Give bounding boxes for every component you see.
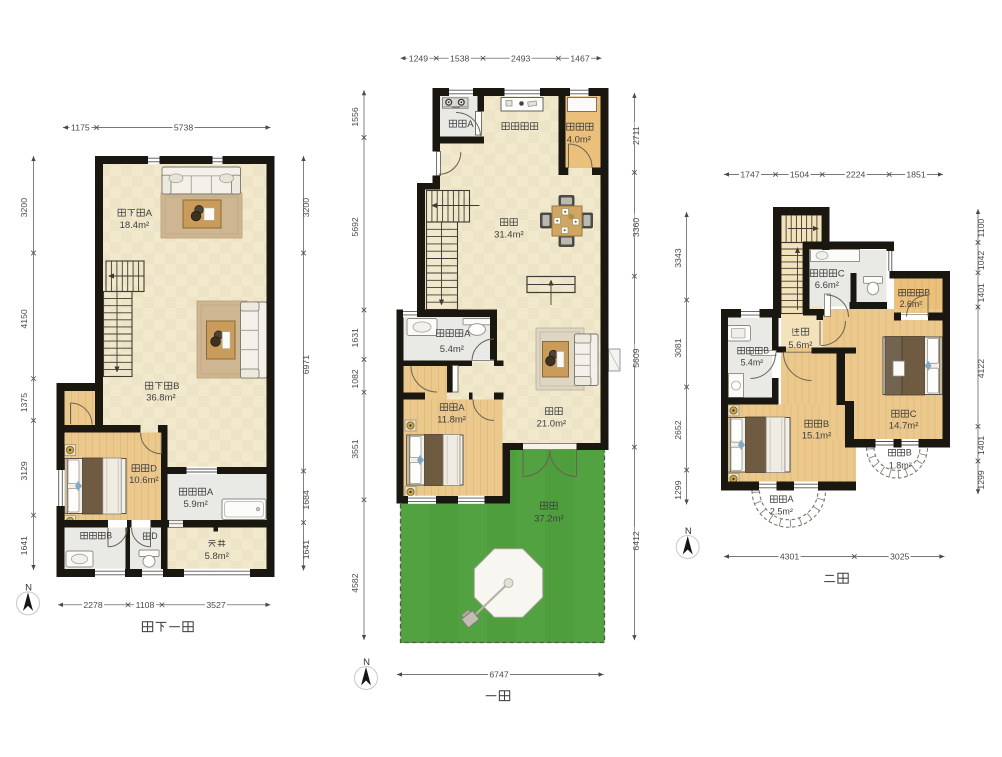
svg-text:5.8m²: 5.8m² xyxy=(205,551,229,562)
svg-text:C: C xyxy=(838,268,845,279)
svg-text:6971: 6971 xyxy=(301,355,311,374)
svg-text:1249: 1249 xyxy=(409,53,428,63)
svg-text:1641: 1641 xyxy=(19,536,29,555)
svg-text:1538: 1538 xyxy=(450,53,469,63)
svg-text:5.9m²: 5.9m² xyxy=(184,499,208,510)
svg-text:36.8m²: 36.8m² xyxy=(146,392,176,403)
svg-text:1375: 1375 xyxy=(19,393,29,412)
svg-text:3200: 3200 xyxy=(301,198,311,217)
svg-text:2.5m²: 2.5m² xyxy=(770,507,793,517)
svg-text:B: B xyxy=(924,288,930,298)
svg-text:5738: 5738 xyxy=(174,123,193,133)
svg-text:1641: 1641 xyxy=(301,540,311,559)
svg-text:B: B xyxy=(173,381,179,392)
svg-text:D: D xyxy=(150,463,157,474)
svg-text:B: B xyxy=(823,419,829,430)
svg-text:1042: 1042 xyxy=(976,251,986,270)
svg-text:5.6m²: 5.6m² xyxy=(788,340,812,351)
svg-text:2278: 2278 xyxy=(83,600,102,610)
svg-text:A: A xyxy=(458,402,465,413)
svg-text:1108: 1108 xyxy=(136,600,155,610)
svg-text:1504: 1504 xyxy=(790,170,809,180)
svg-text:3025: 3025 xyxy=(890,552,909,562)
svg-text:3360: 3360 xyxy=(631,218,641,237)
svg-text:2652: 2652 xyxy=(673,420,683,439)
svg-text:B: B xyxy=(106,531,112,541)
svg-text:31.4m²: 31.4m² xyxy=(494,229,524,240)
svg-text:3081: 3081 xyxy=(673,338,683,357)
svg-text:1401: 1401 xyxy=(976,283,986,302)
svg-text:1299: 1299 xyxy=(673,480,683,499)
svg-text:4122: 4122 xyxy=(976,359,986,378)
svg-text:1082: 1082 xyxy=(350,369,360,388)
svg-text:2493: 2493 xyxy=(511,53,530,63)
svg-text:4150: 4150 xyxy=(19,309,29,328)
svg-text:1401: 1401 xyxy=(976,436,986,455)
svg-text:2.6m²: 2.6m² xyxy=(900,299,923,309)
svg-text:C: C xyxy=(910,409,917,420)
svg-text:3343: 3343 xyxy=(673,248,683,267)
svg-text:11.8m²: 11.8m² xyxy=(437,414,466,425)
svg-text:1556: 1556 xyxy=(350,107,360,126)
svg-text:4.0m²: 4.0m² xyxy=(567,134,591,145)
svg-text:10.6m²: 10.6m² xyxy=(129,475,159,486)
svg-text:14.7m²: 14.7m² xyxy=(889,420,919,431)
svg-text:21.0m²: 21.0m² xyxy=(537,418,567,429)
svg-text:1631: 1631 xyxy=(350,328,360,347)
svg-text:18.4m²: 18.4m² xyxy=(120,220,150,231)
svg-text:5.4m²: 5.4m² xyxy=(440,344,464,355)
svg-text:D: D xyxy=(151,531,157,541)
svg-text:5.4m²: 5.4m² xyxy=(741,358,764,368)
svg-text:3200: 3200 xyxy=(19,198,29,217)
svg-text:1747: 1747 xyxy=(740,170,759,180)
svg-text:A: A xyxy=(207,487,214,498)
svg-text:5609: 5609 xyxy=(631,348,641,367)
svg-text:2711: 2711 xyxy=(631,126,641,145)
svg-text:15.1m²: 15.1m² xyxy=(802,430,832,441)
svg-text:37.2m²: 37.2m² xyxy=(534,513,564,524)
svg-text:4301: 4301 xyxy=(780,552,799,562)
svg-text:4582: 4582 xyxy=(350,573,360,592)
svg-text:B: B xyxy=(763,346,769,356)
svg-text:1.8m²: 1.8m² xyxy=(889,461,912,471)
svg-text:2224: 2224 xyxy=(846,170,865,180)
svg-text:1175: 1175 xyxy=(71,123,90,133)
svg-text:1467: 1467 xyxy=(570,53,589,63)
svg-text:A: A xyxy=(464,328,471,339)
svg-text:B: B xyxy=(906,448,912,458)
svg-text:3551: 3551 xyxy=(350,439,360,458)
svg-text:A: A xyxy=(467,119,474,130)
svg-text:A: A xyxy=(788,494,794,504)
svg-text:1299: 1299 xyxy=(976,470,986,489)
svg-text:3527: 3527 xyxy=(206,600,225,610)
svg-text:6.6m²: 6.6m² xyxy=(815,280,839,291)
svg-text:3129: 3129 xyxy=(19,461,29,480)
svg-text:1851: 1851 xyxy=(906,170,925,180)
svg-text:6747: 6747 xyxy=(489,670,508,680)
svg-text:1100: 1100 xyxy=(976,219,986,238)
svg-text:5692: 5692 xyxy=(350,217,360,236)
svg-text:1684: 1684 xyxy=(301,490,311,509)
svg-text:A: A xyxy=(146,208,153,219)
svg-text:6412: 6412 xyxy=(631,531,641,550)
